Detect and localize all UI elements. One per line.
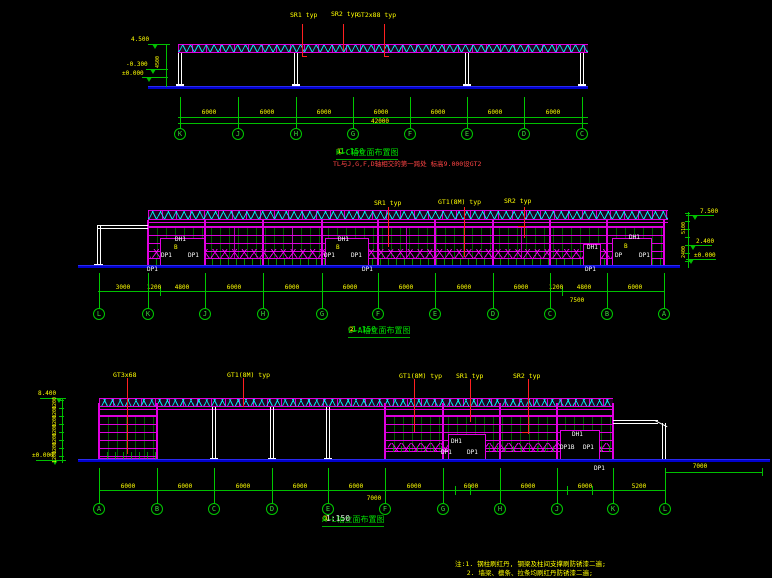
grid-letter: J bbox=[555, 505, 559, 513]
level-value: 4.500 bbox=[131, 36, 149, 43]
grid-stem bbox=[180, 97, 181, 129]
vertical-dim: 1200 bbox=[52, 451, 58, 463]
bay-dim: 6000 bbox=[260, 109, 274, 116]
steel-column bbox=[326, 407, 330, 459]
component-label: SR1 typ bbox=[374, 199, 401, 207]
door-label: DP1 bbox=[351, 252, 362, 259]
level-value: 2.400 bbox=[696, 238, 714, 245]
level-symbol bbox=[692, 215, 698, 220]
leader-line bbox=[127, 378, 128, 454]
grid-bubble: H bbox=[257, 308, 269, 320]
level-symbol bbox=[688, 259, 694, 264]
grid-stem bbox=[607, 273, 608, 309]
leader-line bbox=[343, 24, 344, 51]
door-label: DH1 bbox=[338, 236, 349, 243]
frame-column bbox=[556, 403, 558, 461]
leader-line bbox=[302, 24, 303, 57]
door-sublabel: B bbox=[174, 244, 178, 251]
grid-bubble: L bbox=[659, 503, 671, 515]
door-label: DP1 bbox=[188, 252, 199, 259]
grid-bubble: B bbox=[151, 503, 163, 515]
grid-bubble: C bbox=[576, 128, 588, 140]
leader-foot bbox=[384, 56, 389, 57]
grid-stem bbox=[435, 273, 436, 309]
brace-band bbox=[150, 249, 612, 258]
grid-bubble: E bbox=[461, 128, 473, 140]
grid-stem bbox=[493, 273, 494, 309]
door-label: DP1B bbox=[560, 444, 574, 451]
grid-stem bbox=[272, 468, 273, 504]
door-label: DP1 bbox=[441, 449, 452, 456]
grid-stem bbox=[238, 97, 239, 129]
grid-bubble: K bbox=[142, 308, 154, 320]
canopy-dim: 7000 bbox=[693, 463, 707, 470]
component-label: SR2 typ bbox=[504, 197, 531, 205]
bay-dim: 6000 bbox=[488, 109, 502, 116]
canopy-beam bbox=[98, 225, 148, 226]
component-label: GT1(8M) typ bbox=[399, 372, 442, 380]
grid-bubble: E bbox=[322, 503, 334, 515]
frame-column bbox=[156, 403, 158, 461]
grid-stem bbox=[263, 273, 264, 309]
title-scale: 1:150 bbox=[352, 325, 376, 334]
vertical-dim: 2400 bbox=[681, 246, 687, 258]
grid-letter: L bbox=[663, 505, 667, 513]
grid-letter: K bbox=[146, 310, 150, 318]
grid-bubble: A bbox=[93, 503, 105, 515]
door-label: DP1 bbox=[467, 449, 478, 456]
grid-letter: G bbox=[320, 310, 324, 318]
steel-column bbox=[465, 53, 469, 84]
grid-letter: D bbox=[522, 130, 526, 138]
component-label: SR1 typ bbox=[456, 372, 483, 380]
component-label: GT1(8M) typ bbox=[438, 198, 481, 206]
component-label: GT3x68 bbox=[113, 371, 136, 379]
vertical-dim: 4500 bbox=[155, 56, 161, 68]
bay-dim: 6000 bbox=[349, 483, 363, 490]
grid-stem bbox=[148, 273, 149, 309]
grid-letter: C bbox=[548, 310, 552, 318]
chain-ticks bbox=[59, 400, 64, 462]
bay-dim: 6000 bbox=[628, 284, 642, 291]
level-value: -0.300 bbox=[126, 61, 148, 68]
total-dim: 42000 bbox=[371, 118, 389, 125]
bay-dim: 6000 bbox=[521, 483, 535, 490]
bay-dim: 6000 bbox=[227, 284, 241, 291]
grid-bubble: F bbox=[372, 308, 384, 320]
grid-letter: A bbox=[97, 505, 101, 513]
grid-stem bbox=[613, 468, 614, 504]
leader-line bbox=[470, 379, 471, 422]
grid-stem bbox=[157, 468, 158, 504]
door-label: DP1 bbox=[639, 252, 650, 259]
component-label: GT1(8M) typ bbox=[227, 371, 270, 379]
leader-line bbox=[524, 207, 525, 238]
grid-letter: C bbox=[212, 505, 216, 513]
door-label: DP1 bbox=[147, 266, 158, 273]
drawing-note: TL与J,G,F,D轴相交的第一跨处 标高9.000设GT2 bbox=[333, 158, 481, 168]
grid-letter: B bbox=[155, 505, 159, 513]
grid-stem bbox=[99, 273, 100, 309]
bay-dim: 6000 bbox=[514, 284, 528, 291]
bay-dim: 4800 bbox=[175, 284, 189, 291]
bay-dim: 6000 bbox=[293, 483, 307, 490]
grid-stem bbox=[467, 97, 468, 129]
grid-letter: E bbox=[433, 310, 437, 318]
sub-column bbox=[292, 226, 293, 258]
door-label: DP1 bbox=[594, 465, 605, 472]
grid-bubble: J bbox=[551, 503, 563, 515]
leader-line bbox=[384, 24, 385, 57]
grid-letter: L bbox=[97, 310, 101, 318]
dim-tick bbox=[762, 468, 763, 476]
frame-column bbox=[549, 220, 551, 267]
canopy-column bbox=[662, 423, 666, 461]
grid-stem bbox=[443, 468, 444, 504]
grid-stem bbox=[296, 97, 297, 129]
grid-bubble: K bbox=[607, 503, 619, 515]
grid-letter: K bbox=[178, 130, 182, 138]
bay-dim: 5200 bbox=[632, 483, 646, 490]
bay-dim: 3000 bbox=[116, 284, 130, 291]
leader-line bbox=[243, 378, 244, 407]
door-label: DH1 bbox=[175, 236, 186, 243]
grid-letter: K bbox=[611, 505, 615, 513]
grid-stem bbox=[322, 273, 323, 309]
leader-line bbox=[528, 379, 529, 434]
grid-stem bbox=[664, 273, 665, 309]
ground-line bbox=[78, 459, 770, 462]
grid-bubble: B bbox=[601, 308, 613, 320]
bay-dim: 6000 bbox=[457, 284, 471, 291]
grid-letter: D bbox=[491, 310, 495, 318]
level-symbol bbox=[152, 44, 158, 49]
door-label: DP1 bbox=[161, 252, 172, 259]
frame-column bbox=[377, 220, 379, 267]
grid-bubble: F bbox=[379, 503, 391, 515]
grid-letter: F bbox=[408, 130, 412, 138]
grid-letter: F bbox=[376, 310, 380, 318]
frame-column bbox=[434, 220, 436, 267]
bay-dim: 4800 bbox=[577, 284, 591, 291]
grid-bubble: C bbox=[208, 503, 220, 515]
grid-letter: F bbox=[383, 505, 387, 513]
grid-stem bbox=[205, 273, 206, 309]
roof-truss-band bbox=[178, 44, 588, 53]
grid-bubble: H bbox=[290, 128, 302, 140]
leader-line bbox=[414, 379, 415, 432]
grid-bubble: G bbox=[347, 128, 359, 140]
level-symbol bbox=[146, 77, 152, 82]
grid-stem bbox=[665, 468, 666, 504]
grid-bubble: D bbox=[266, 503, 278, 515]
grid-stem bbox=[328, 468, 329, 504]
frame-column bbox=[492, 220, 494, 267]
frame-column bbox=[612, 403, 614, 461]
dim-tick bbox=[455, 486, 456, 495]
girt-line bbox=[99, 409, 613, 410]
level-value: 8.400 bbox=[38, 390, 56, 397]
grid-bubble: A bbox=[658, 308, 670, 320]
grid-letter: E bbox=[465, 130, 469, 138]
grid-letter: H bbox=[294, 130, 298, 138]
bay-dim: 6000 bbox=[285, 284, 299, 291]
level-symbol bbox=[150, 69, 156, 74]
grid-letter: A bbox=[662, 310, 666, 318]
dim-line bbox=[99, 490, 665, 491]
component-label: GT2x88 typ bbox=[357, 11, 396, 19]
frame-column bbox=[663, 220, 665, 267]
frame-column bbox=[98, 403, 100, 461]
grid-bubble: K bbox=[174, 128, 186, 140]
grid-stem bbox=[353, 97, 354, 129]
bay-dim: 6000 bbox=[317, 109, 331, 116]
note-line: 2. 墙梁、檩条、拉条均刷红丹防锈漆二遍; bbox=[455, 569, 755, 578]
bay-dim: 6000 bbox=[343, 284, 357, 291]
grid-bubble: H bbox=[494, 503, 506, 515]
frame-column bbox=[384, 403, 386, 461]
grid-stem bbox=[582, 97, 583, 129]
canopy-beam bbox=[613, 420, 658, 421]
vertical-dim: 5100 bbox=[681, 222, 687, 234]
steel-column bbox=[294, 53, 298, 84]
note-line: 注:1. 钢柱刷红丹, 钢梁及柱间支撑刷防锈漆二遍; bbox=[455, 560, 755, 569]
grid-letter: J bbox=[236, 130, 240, 138]
canopy-beam bbox=[98, 228, 148, 229]
bay-dim: 6000 bbox=[546, 109, 560, 116]
door-label: DP1 bbox=[585, 266, 596, 273]
bay-dim: 6000 bbox=[374, 109, 388, 116]
canopy-dim-line bbox=[665, 472, 762, 473]
bay-dim: 6000 bbox=[178, 483, 192, 490]
grid-letter: B bbox=[605, 310, 609, 318]
grid-stem bbox=[557, 468, 558, 504]
grid-bubble: E bbox=[429, 308, 441, 320]
tick-strip bbox=[99, 452, 157, 459]
door-label: DH1 bbox=[572, 431, 583, 438]
grid-bubble: G bbox=[316, 308, 328, 320]
door-label: DP1 bbox=[362, 266, 373, 273]
component-label: SR2 typ bbox=[513, 372, 540, 380]
bay-dim: 6000 bbox=[202, 109, 216, 116]
title-scale: 1:150 bbox=[340, 147, 364, 156]
grid-stem bbox=[524, 97, 525, 129]
grid-stem bbox=[214, 468, 215, 504]
component-label: SR2 typ bbox=[331, 10, 358, 18]
level-flag-line bbox=[686, 215, 714, 216]
grid-bubble: C bbox=[544, 308, 556, 320]
grid-bubble: D bbox=[518, 128, 530, 140]
cad-elevation-drawing: 42000 ① K~C轴立面布置图 1:150 TL与J,G,F,D轴相交的第一… bbox=[0, 0, 772, 578]
grid-letter: G bbox=[351, 130, 355, 138]
bay-dim: 6000 bbox=[407, 483, 421, 490]
title-scale: 1:150 bbox=[326, 514, 350, 523]
door-label: DH1 bbox=[629, 234, 640, 241]
grid-bubble: L bbox=[93, 308, 105, 320]
grid-letter: G bbox=[441, 505, 445, 513]
door-sublabel: B bbox=[624, 243, 628, 250]
leader-line bbox=[388, 207, 389, 247]
grid-bubble: D bbox=[487, 308, 499, 320]
grid-bubble: J bbox=[232, 128, 244, 140]
grid-bubble: F bbox=[404, 128, 416, 140]
general-notes: 注:1. 钢柱刷红丹, 钢梁及柱间支撑刷防锈漆二遍; 2. 墙梁、檩条、拉条均刷… bbox=[455, 533, 755, 563]
bay-dim: 6000 bbox=[121, 483, 135, 490]
frame-column bbox=[606, 220, 608, 267]
grid-letter: H bbox=[498, 505, 502, 513]
level-value: ±0.000 bbox=[694, 252, 716, 259]
grid-stem bbox=[99, 468, 100, 504]
level-value: 7.500 bbox=[700, 208, 718, 215]
dim-tick bbox=[567, 486, 568, 495]
ground-line bbox=[148, 86, 588, 89]
frame-column bbox=[321, 220, 323, 267]
door-sublabel: B bbox=[336, 244, 340, 251]
canopy-beam bbox=[613, 423, 658, 424]
bay-dim: 6000 bbox=[464, 483, 478, 490]
roof-truss-band bbox=[99, 398, 613, 407]
door-label: DP1 bbox=[583, 444, 594, 451]
door-label: DP bbox=[615, 252, 622, 259]
leader-foot bbox=[522, 432, 528, 433]
total-dim: 7000 bbox=[367, 495, 381, 502]
canopy-column bbox=[97, 225, 101, 266]
grid-stem bbox=[500, 468, 501, 504]
level-value: ±0.000 bbox=[32, 452, 54, 459]
level-value: ±0.000 bbox=[122, 70, 144, 77]
frame-column bbox=[262, 220, 264, 267]
grid-stem bbox=[385, 468, 386, 504]
door-label: DP1 bbox=[324, 252, 335, 259]
bay-dim: 6000 bbox=[236, 483, 250, 490]
grid-letter: D bbox=[270, 505, 274, 513]
grid-letter: J bbox=[203, 310, 207, 318]
girt-line bbox=[148, 222, 668, 223]
frame-column bbox=[499, 403, 501, 461]
total-dim: 7500 bbox=[570, 297, 584, 304]
leader-foot bbox=[518, 226, 526, 227]
steel-column bbox=[178, 53, 182, 84]
leader-line bbox=[464, 207, 465, 257]
door-label: DH1 bbox=[451, 438, 462, 445]
grid-bubble: J bbox=[199, 308, 211, 320]
grid-letter: C bbox=[580, 130, 584, 138]
bay-dim: 6000 bbox=[399, 284, 413, 291]
grid-letter: E bbox=[326, 505, 330, 513]
grid-stem bbox=[550, 273, 551, 309]
level-flag-line bbox=[36, 460, 66, 461]
roof-truss-band bbox=[148, 210, 668, 220]
grid-letter: H bbox=[261, 310, 265, 318]
bay-dim: 6000 bbox=[431, 109, 445, 116]
component-label: SR1 typ bbox=[290, 11, 317, 19]
level-symbol bbox=[690, 245, 696, 250]
steel-column bbox=[270, 407, 274, 459]
sub-column bbox=[406, 226, 407, 258]
sub-column bbox=[521, 226, 522, 258]
bay-dim: 6000 bbox=[578, 483, 592, 490]
leader-foot bbox=[302, 56, 307, 57]
steel-column bbox=[212, 407, 216, 459]
door-label: DH1 bbox=[587, 244, 598, 251]
dim-chain bbox=[166, 45, 167, 87]
grid-bubble: G bbox=[437, 503, 449, 515]
dim-line bbox=[98, 291, 665, 292]
grid-stem bbox=[378, 273, 379, 309]
sub-column bbox=[234, 226, 235, 258]
steel-column bbox=[580, 53, 584, 84]
grid-stem bbox=[410, 97, 411, 129]
